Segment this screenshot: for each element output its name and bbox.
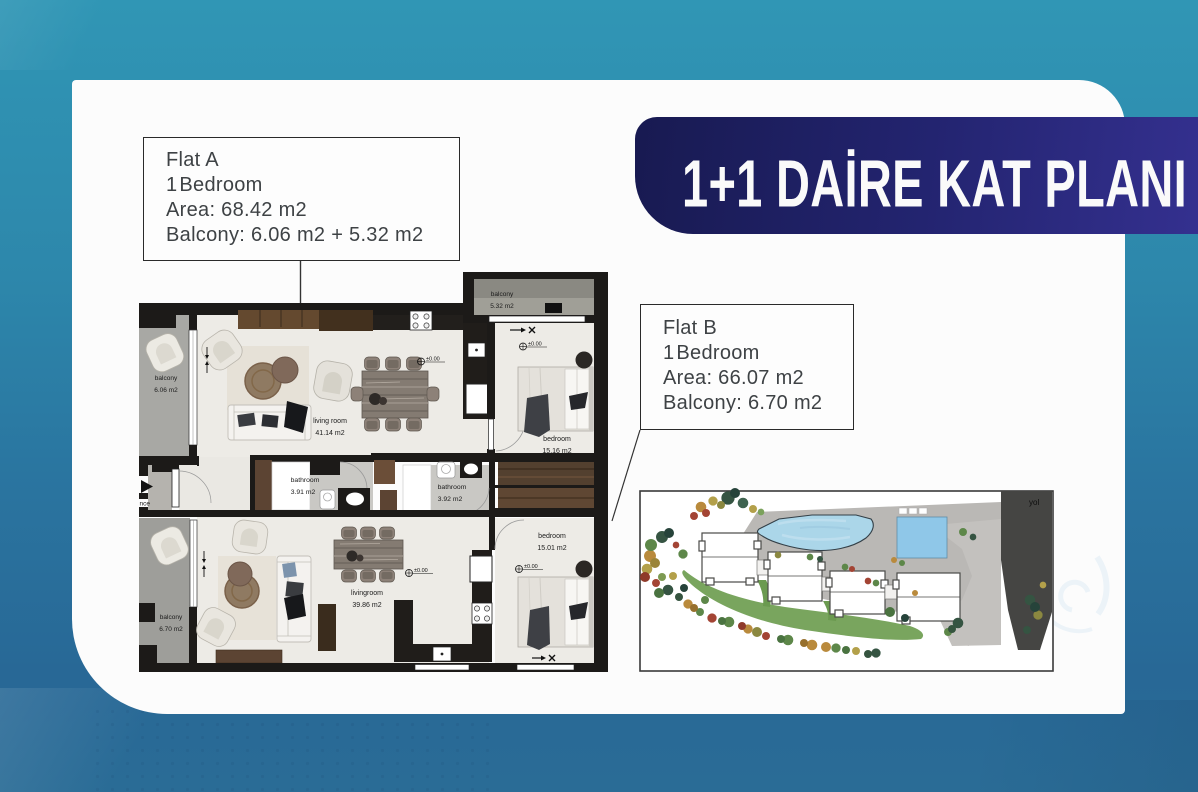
svg-text:balcony: balcony [155, 375, 178, 382]
svg-text:39.86 m2: 39.86 m2 [352, 602, 381, 609]
svg-text:livingroom: livingroom [351, 590, 383, 597]
svg-text:bedroom: bedroom [538, 533, 566, 540]
svg-text:±0.00: ±0.00 [524, 564, 538, 570]
svg-text:living room: living room [313, 418, 347, 425]
svg-text:6.06 m2: 6.06 m2 [154, 387, 178, 394]
svg-text:yol: yol [1029, 498, 1039, 507]
svg-text:15.01 m2: 15.01 m2 [537, 545, 566, 552]
svg-text:3.92 m2: 3.92 m2 [438, 496, 463, 503]
svg-text:balcony: balcony [491, 291, 514, 298]
svg-text:6.70 m2: 6.70 m2 [159, 626, 183, 633]
svg-text:3.91 m2: 3.91 m2 [291, 489, 316, 496]
svg-text:nce: nce [140, 501, 151, 508]
svg-text:bathroom: bathroom [291, 477, 320, 484]
svg-text:±0.00: ±0.00 [414, 568, 428, 574]
svg-text:±0.00: ±0.00 [528, 342, 542, 348]
svg-text:bedroom: bedroom [543, 436, 571, 443]
svg-text:15.16 m2: 15.16 m2 [542, 448, 571, 455]
svg-text:bathroom: bathroom [438, 484, 467, 491]
svg-text:41.14 m2: 41.14 m2 [315, 430, 344, 437]
svg-text:5.32 m2: 5.32 m2 [490, 303, 514, 310]
svg-text:±0.00: ±0.00 [426, 357, 440, 363]
svg-text:balcony: balcony [160, 614, 183, 621]
